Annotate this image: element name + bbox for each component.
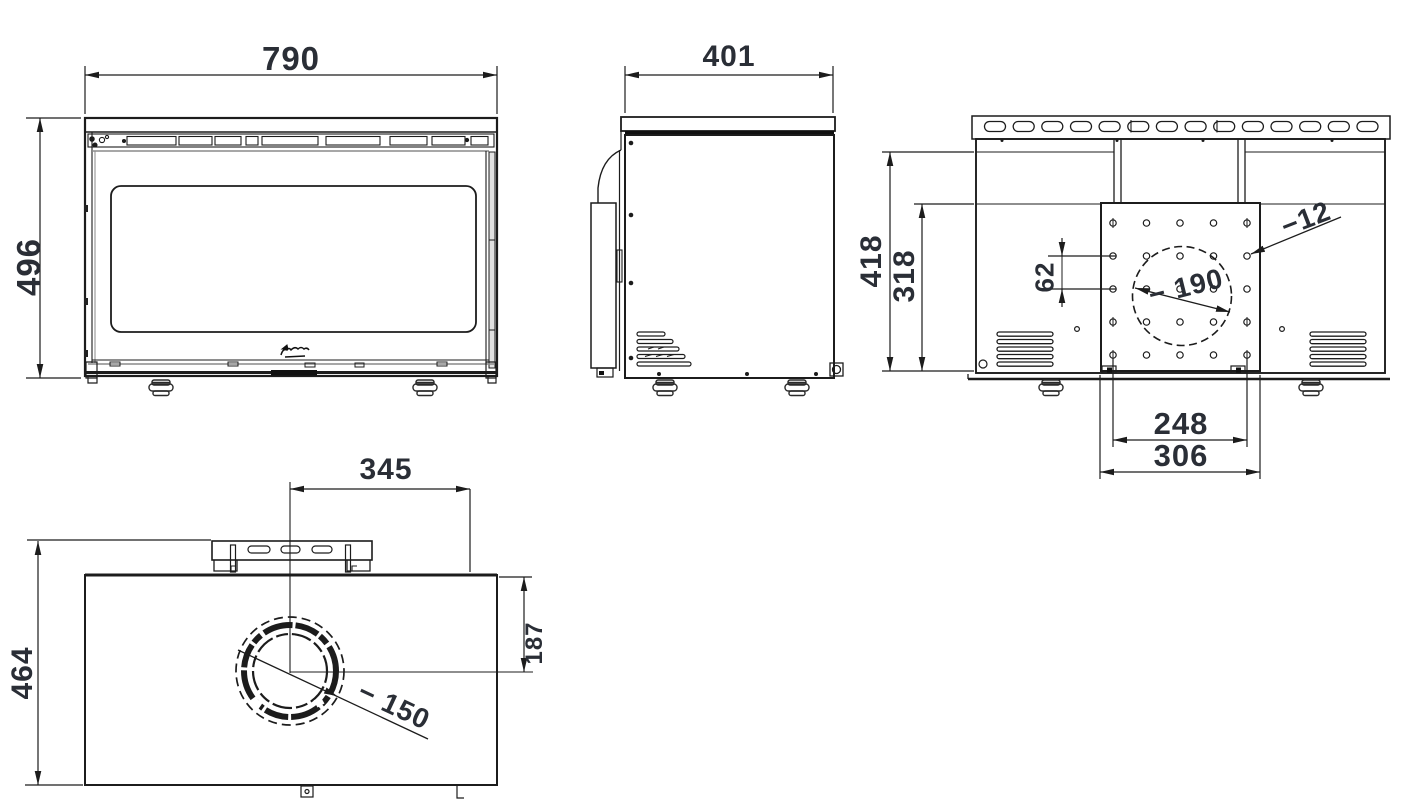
dim-label-rear-plate-width: 306 bbox=[1154, 438, 1209, 474]
leveling-foot bbox=[1299, 380, 1323, 396]
dim-label-rear-hole-span: 248 bbox=[1154, 406, 1209, 442]
damper-latch bbox=[830, 363, 843, 376]
technical-drawing-page: 790 496 401 418 318 62 −12 − 190 248 306… bbox=[0, 0, 1408, 812]
dim-label-top-flue-offset-front: 187 bbox=[521, 621, 549, 664]
leveling-foot bbox=[413, 380, 437, 396]
rear-body-outline bbox=[976, 139, 1385, 373]
side-door-profile bbox=[591, 131, 622, 377]
dim-label-front-width: 790 bbox=[262, 40, 320, 78]
mounting-bracket bbox=[212, 541, 372, 572]
side-view bbox=[591, 66, 843, 396]
dim-label-top-flue-offset-right: 345 bbox=[359, 453, 412, 487]
brand-logo bbox=[281, 345, 309, 357]
glass-window bbox=[111, 186, 476, 332]
dim-label-side-depth: 401 bbox=[702, 40, 755, 74]
leveling-foot bbox=[1039, 380, 1063, 396]
dim-label-rear-back-height: 418 bbox=[855, 234, 889, 287]
rear-vent-slots-right bbox=[1310, 332, 1366, 366]
rear-plate-height-dimension bbox=[914, 204, 974, 371]
side-screws bbox=[629, 141, 818, 376]
dim-label-rear-hole-pitch: 62 bbox=[1030, 262, 1061, 293]
dim-label-rear-plate-height: 318 bbox=[888, 249, 922, 302]
top-view bbox=[25, 482, 533, 798]
front-body-outline bbox=[85, 118, 497, 376]
front-louver-band bbox=[88, 134, 494, 147]
top-bottom-tabs bbox=[301, 785, 464, 798]
leveling-foot bbox=[653, 380, 677, 396]
leveling-foot bbox=[785, 380, 809, 396]
side-body-outline bbox=[625, 135, 834, 378]
dim-label-top-depth: 464 bbox=[6, 646, 40, 699]
rear-duct bbox=[1114, 139, 1245, 203]
front-bottom-rail bbox=[85, 360, 497, 383]
leveling-foot bbox=[149, 380, 173, 396]
rear-vent-slots-left bbox=[997, 332, 1053, 366]
side-vent-slots bbox=[637, 332, 691, 366]
top-body-outline bbox=[85, 575, 497, 785]
top-depth-dimension bbox=[25, 540, 211, 785]
front-view bbox=[26, 66, 497, 396]
rear-view bbox=[882, 116, 1390, 479]
dim-label-front-height: 496 bbox=[10, 238, 48, 296]
